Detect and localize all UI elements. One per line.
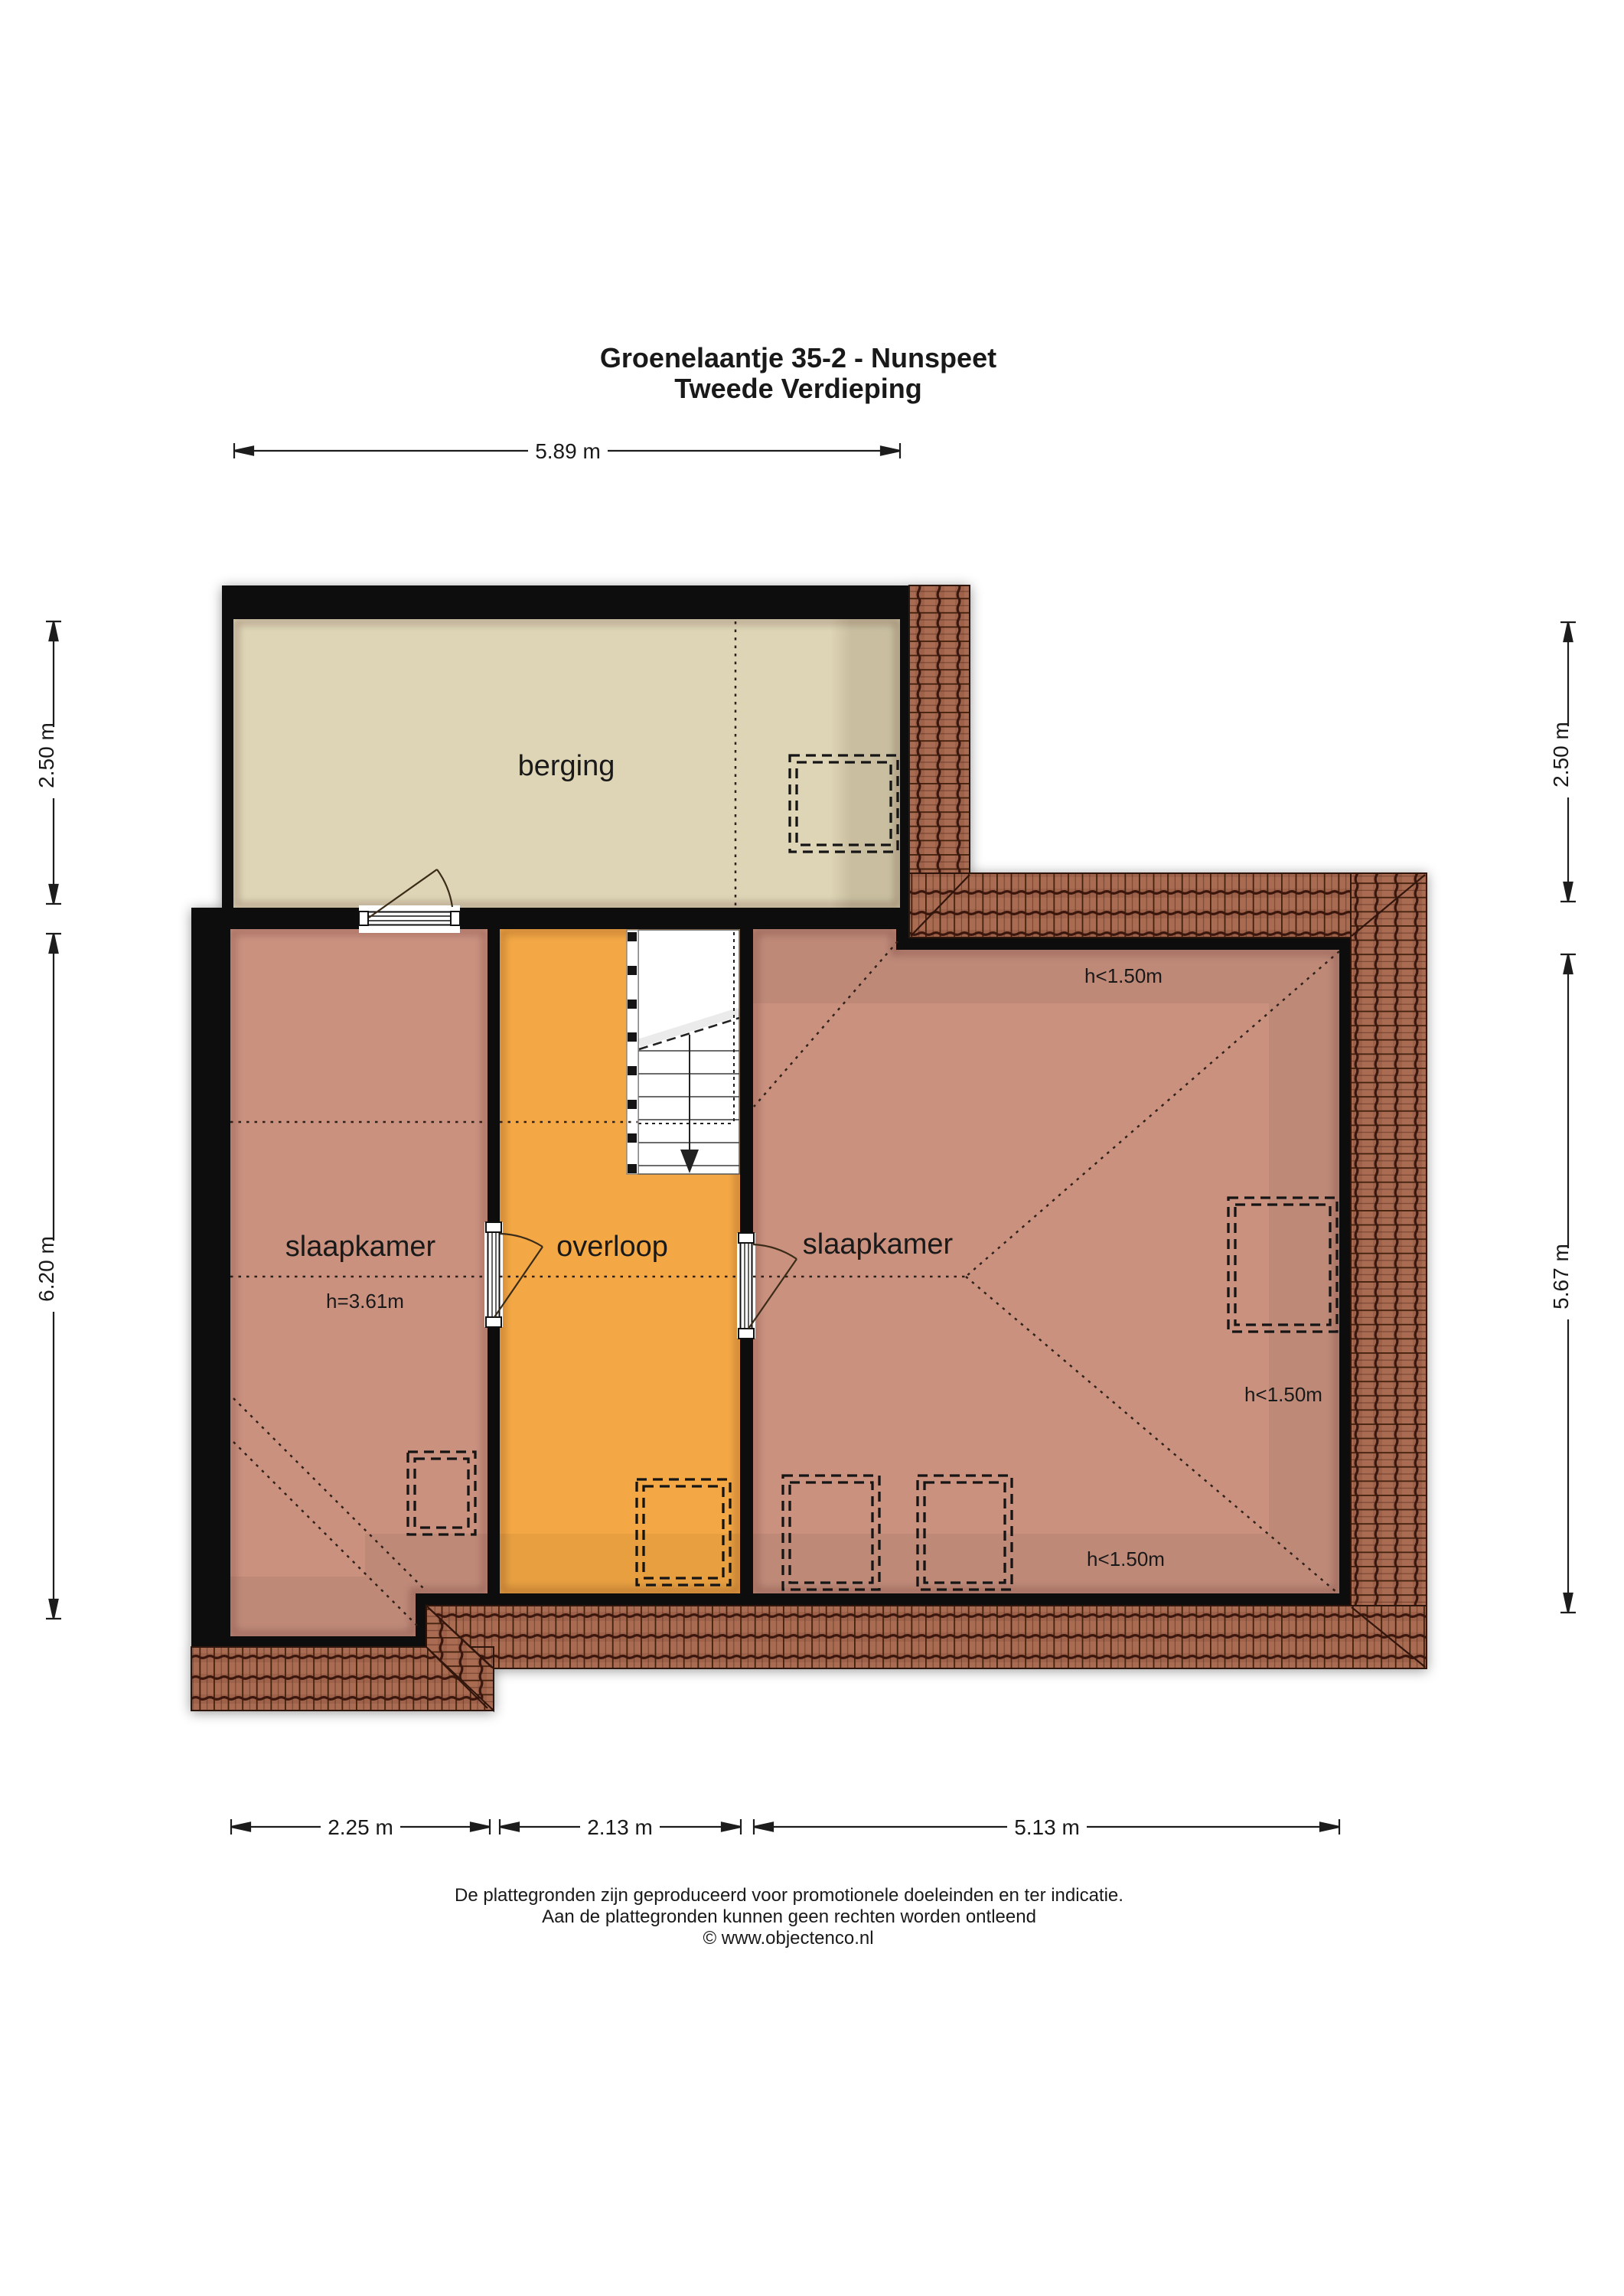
svg-text:5.67 m: 5.67 m bbox=[1549, 1244, 1573, 1309]
svg-text:2.13 m: 2.13 m bbox=[587, 1815, 653, 1839]
svg-text:Tweede Verdieping: Tweede Verdieping bbox=[674, 373, 921, 404]
svg-text:slaapkamer: slaapkamer bbox=[285, 1231, 436, 1263]
svg-text:overloop: overloop bbox=[556, 1231, 668, 1263]
svg-text:© www.objectenco.nl: © www.objectenco.nl bbox=[703, 1928, 873, 1949]
svg-text:2.50 m: 2.50 m bbox=[34, 722, 58, 788]
svg-text:h<1.50m: h<1.50m bbox=[1084, 964, 1163, 987]
svg-text:h=3.61m: h=3.61m bbox=[326, 1290, 404, 1313]
svg-text:Aan de plattegronden kunnen ge: Aan de plattegronden kunnen geen rechten… bbox=[542, 1906, 1036, 1927]
svg-text:2.50 m: 2.50 m bbox=[1549, 722, 1573, 788]
svg-text:Groenelaantje 35-2 - Nunspeet: Groenelaantje 35-2 - Nunspeet bbox=[600, 342, 996, 373]
svg-text:De plattegronden zijn geproduc: De plattegronden zijn geproduceerd voor … bbox=[455, 1885, 1123, 1906]
svg-text:h<1.50m: h<1.50m bbox=[1244, 1383, 1322, 1406]
svg-text:5.89 m: 5.89 m bbox=[535, 439, 601, 463]
svg-text:2.25 m: 2.25 m bbox=[328, 1815, 393, 1839]
svg-text:slaapkamer: slaapkamer bbox=[803, 1228, 954, 1261]
svg-text:5.13 m: 5.13 m bbox=[1014, 1815, 1080, 1839]
svg-text:h<1.50m: h<1.50m bbox=[1087, 1548, 1165, 1570]
svg-text:6.20 m: 6.20 m bbox=[34, 1236, 58, 1302]
svg-text:berging: berging bbox=[518, 750, 615, 782]
